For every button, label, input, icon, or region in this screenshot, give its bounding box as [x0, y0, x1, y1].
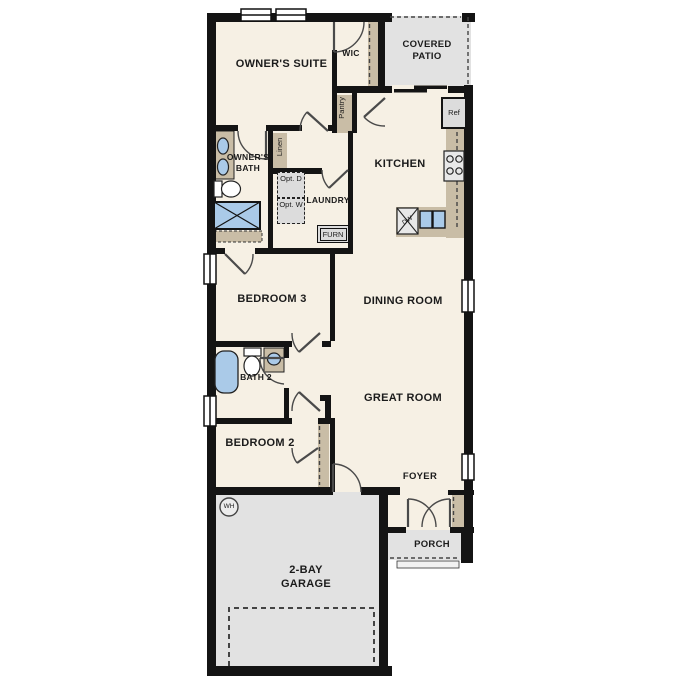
label-dining-room: DINING ROOM: [362, 294, 444, 308]
label-owners-suite: OWNER'S SUITE: [234, 57, 329, 71]
label-porch: PORCH: [401, 539, 463, 551]
label-refrigerator: Ref: [442, 108, 466, 118]
label-furnace: FURN: [320, 228, 347, 241]
label-great-room: GREAT ROOM: [362, 391, 444, 405]
floor-plan: OWNER'S SUITE WIC COVERED PATIO KITCHEN …: [0, 0, 687, 687]
wall-segment: [352, 93, 357, 133]
optional-washer-box: Opt. W: [277, 198, 305, 224]
wall-segment: [384, 527, 406, 533]
slider-panel: [394, 89, 427, 93]
label-bedroom-2: BEDROOM 2: [210, 436, 310, 450]
label-water-heater: WH: [221, 503, 237, 511]
bath-cabinet-strip: [214, 231, 262, 242]
label-owners-bath: OWNER'S BATH: [221, 152, 275, 174]
wall-segment: [207, 125, 238, 131]
label-bath-2: BATH 2: [239, 372, 273, 383]
toilet-tank: [244, 348, 261, 356]
label-covered-patio: COVERED PATIO: [389, 39, 465, 64]
slider-panel: [414, 86, 447, 90]
wall-segment: [448, 86, 472, 93]
wall-segment: [379, 487, 388, 676]
wall-segment: [361, 487, 400, 495]
porch-step: [397, 561, 459, 568]
kitchen-sink-basin: [420, 211, 432, 228]
label-pantry: Pantry: [337, 89, 347, 127]
optional-dryer-box: Opt. D: [277, 172, 305, 198]
wall-segment: [207, 418, 292, 424]
kitchen-sink-basin: [433, 211, 445, 228]
furnace-box: FURN: [317, 225, 349, 243]
wall-segment: [255, 248, 353, 254]
toilet-bowl: [222, 181, 241, 197]
wall-segment: [207, 487, 333, 495]
stove: [444, 151, 464, 181]
label-laundry: LAUNDRY: [299, 195, 357, 206]
label-garage: 2-BAY GARAGE: [267, 563, 345, 592]
label-optional-dryer: Opt. D: [280, 174, 302, 183]
label-wic: WIC: [333, 48, 369, 59]
wall-segment: [284, 341, 289, 358]
toilet-tank: [214, 181, 222, 197]
wall-segment: [378, 16, 385, 86]
wall-segment: [448, 490, 474, 495]
wall-segment: [325, 395, 331, 418]
wall-segment: [330, 254, 335, 341]
wall-segment: [207, 248, 225, 254]
label-optional-washer: Opt. W: [279, 200, 302, 209]
wall-segment: [284, 388, 289, 418]
patio-slider-door: [392, 85, 448, 94]
bathtub: [215, 351, 238, 393]
wall-segment: [450, 527, 474, 533]
wall-segment: [207, 341, 292, 347]
label-foyer: FOYER: [394, 471, 446, 483]
wall-segment: [328, 125, 337, 131]
label-linen: Linen: [275, 128, 285, 166]
label-bedroom-3: BEDROOM 3: [222, 292, 322, 306]
label-kitchen: KITCHEN: [362, 157, 438, 171]
wall-segment: [268, 125, 273, 248]
wall-segment: [322, 341, 331, 347]
wall-segment: [207, 666, 392, 676]
